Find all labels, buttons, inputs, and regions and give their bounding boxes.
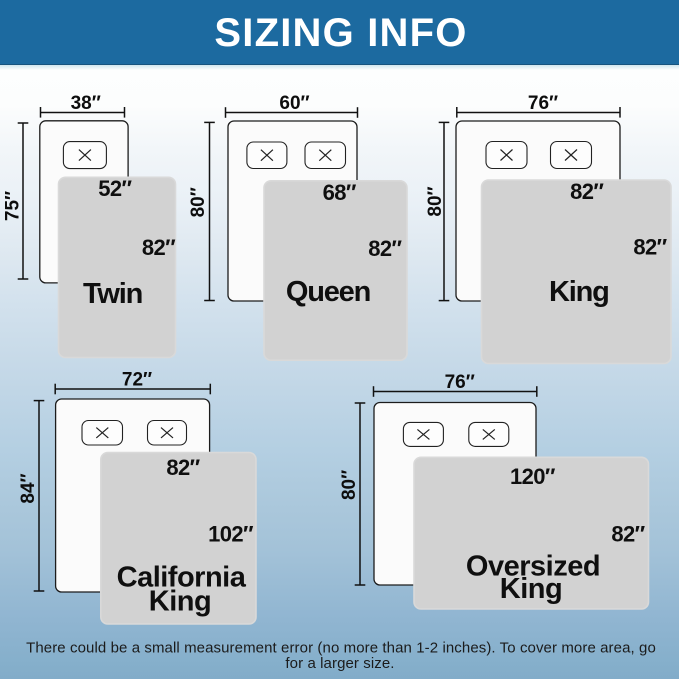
svg-text:Twin: Twin bbox=[83, 278, 142, 310]
svg-text:75″: 75″ bbox=[3, 191, 24, 221]
svg-text:72″: 72″ bbox=[122, 370, 152, 391]
svg-text:There could be a small measure: There could be a small measurement error… bbox=[26, 639, 656, 656]
svg-text:King: King bbox=[549, 276, 609, 308]
svg-text:82″: 82″ bbox=[611, 521, 645, 546]
svg-text:38″: 38″ bbox=[71, 93, 101, 114]
svg-text:82″: 82″ bbox=[166, 455, 200, 480]
svg-text:King: King bbox=[149, 586, 211, 618]
svg-text:for a larger size.: for a larger size. bbox=[285, 655, 394, 672]
svg-text:102″: 102″ bbox=[208, 522, 254, 547]
svg-text:80″: 80″ bbox=[339, 470, 360, 500]
svg-text:82″: 82″ bbox=[368, 236, 402, 261]
svg-text:SIZING INFO: SIZING INFO bbox=[214, 11, 467, 55]
svg-text:82″: 82″ bbox=[633, 235, 667, 260]
svg-text:68″: 68″ bbox=[323, 180, 357, 205]
svg-text:84″: 84″ bbox=[18, 473, 39, 503]
svg-text:120″: 120″ bbox=[510, 464, 556, 489]
svg-text:76″: 76″ bbox=[445, 372, 475, 393]
svg-text:52″: 52″ bbox=[98, 176, 132, 201]
svg-text:82″: 82″ bbox=[570, 179, 604, 204]
svg-text:80″: 80″ bbox=[425, 186, 446, 216]
svg-text:80″: 80″ bbox=[188, 187, 209, 217]
svg-text:82″: 82″ bbox=[142, 235, 176, 260]
svg-text:60″: 60″ bbox=[279, 93, 309, 114]
svg-text:King: King bbox=[500, 573, 562, 605]
svg-text:76″: 76″ bbox=[528, 93, 558, 114]
svg-text:Queen: Queen bbox=[286, 276, 370, 308]
